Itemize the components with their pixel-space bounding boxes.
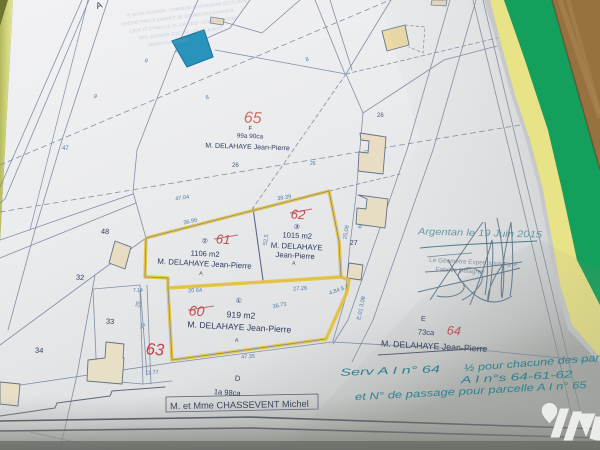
svg-text:7.14: 7.14 — [133, 288, 143, 294]
svg-text:32: 32 — [76, 273, 85, 283]
svg-text:33: 33 — [106, 317, 115, 327]
svg-text:1106 m2: 1106 m2 — [190, 249, 219, 260]
svg-text:61: 61 — [215, 231, 230, 247]
svg-text:F: F — [248, 126, 252, 132]
svg-text:60: 60 — [188, 302, 205, 319]
svg-text:A: A — [235, 338, 239, 344]
svg-text:48: 48 — [101, 227, 110, 237]
svg-text:A: A — [292, 261, 296, 267]
svg-text:26: 26 — [377, 113, 384, 119]
svg-text:99a 90ca: 99a 90ca — [237, 133, 264, 141]
svg-text:11.77: 11.77 — [145, 370, 159, 377]
svg-text:47.35: 47.35 — [241, 354, 255, 361]
svg-text:919 m2: 919 m2 — [226, 309, 255, 320]
svg-text:20 64: 20 64 — [188, 288, 202, 294]
svg-text:26: 26 — [310, 161, 316, 167]
svg-text:②: ② — [201, 237, 208, 245]
svg-text:27.26: 27.26 — [293, 286, 307, 293]
svg-text:26: 26 — [232, 163, 239, 169]
svg-text:A: A — [199, 271, 203, 277]
svg-text:65: 65 — [243, 109, 262, 127]
svg-text:47: 47 — [62, 146, 69, 152]
svg-text:34: 34 — [35, 346, 44, 356]
svg-text:1015 m2: 1015 m2 — [282, 230, 312, 241]
svg-text:62: 62 — [290, 206, 306, 222]
svg-text:①: ① — [235, 297, 242, 305]
svg-text:27: 27 — [350, 240, 358, 247]
svg-text:63: 63 — [145, 340, 165, 359]
